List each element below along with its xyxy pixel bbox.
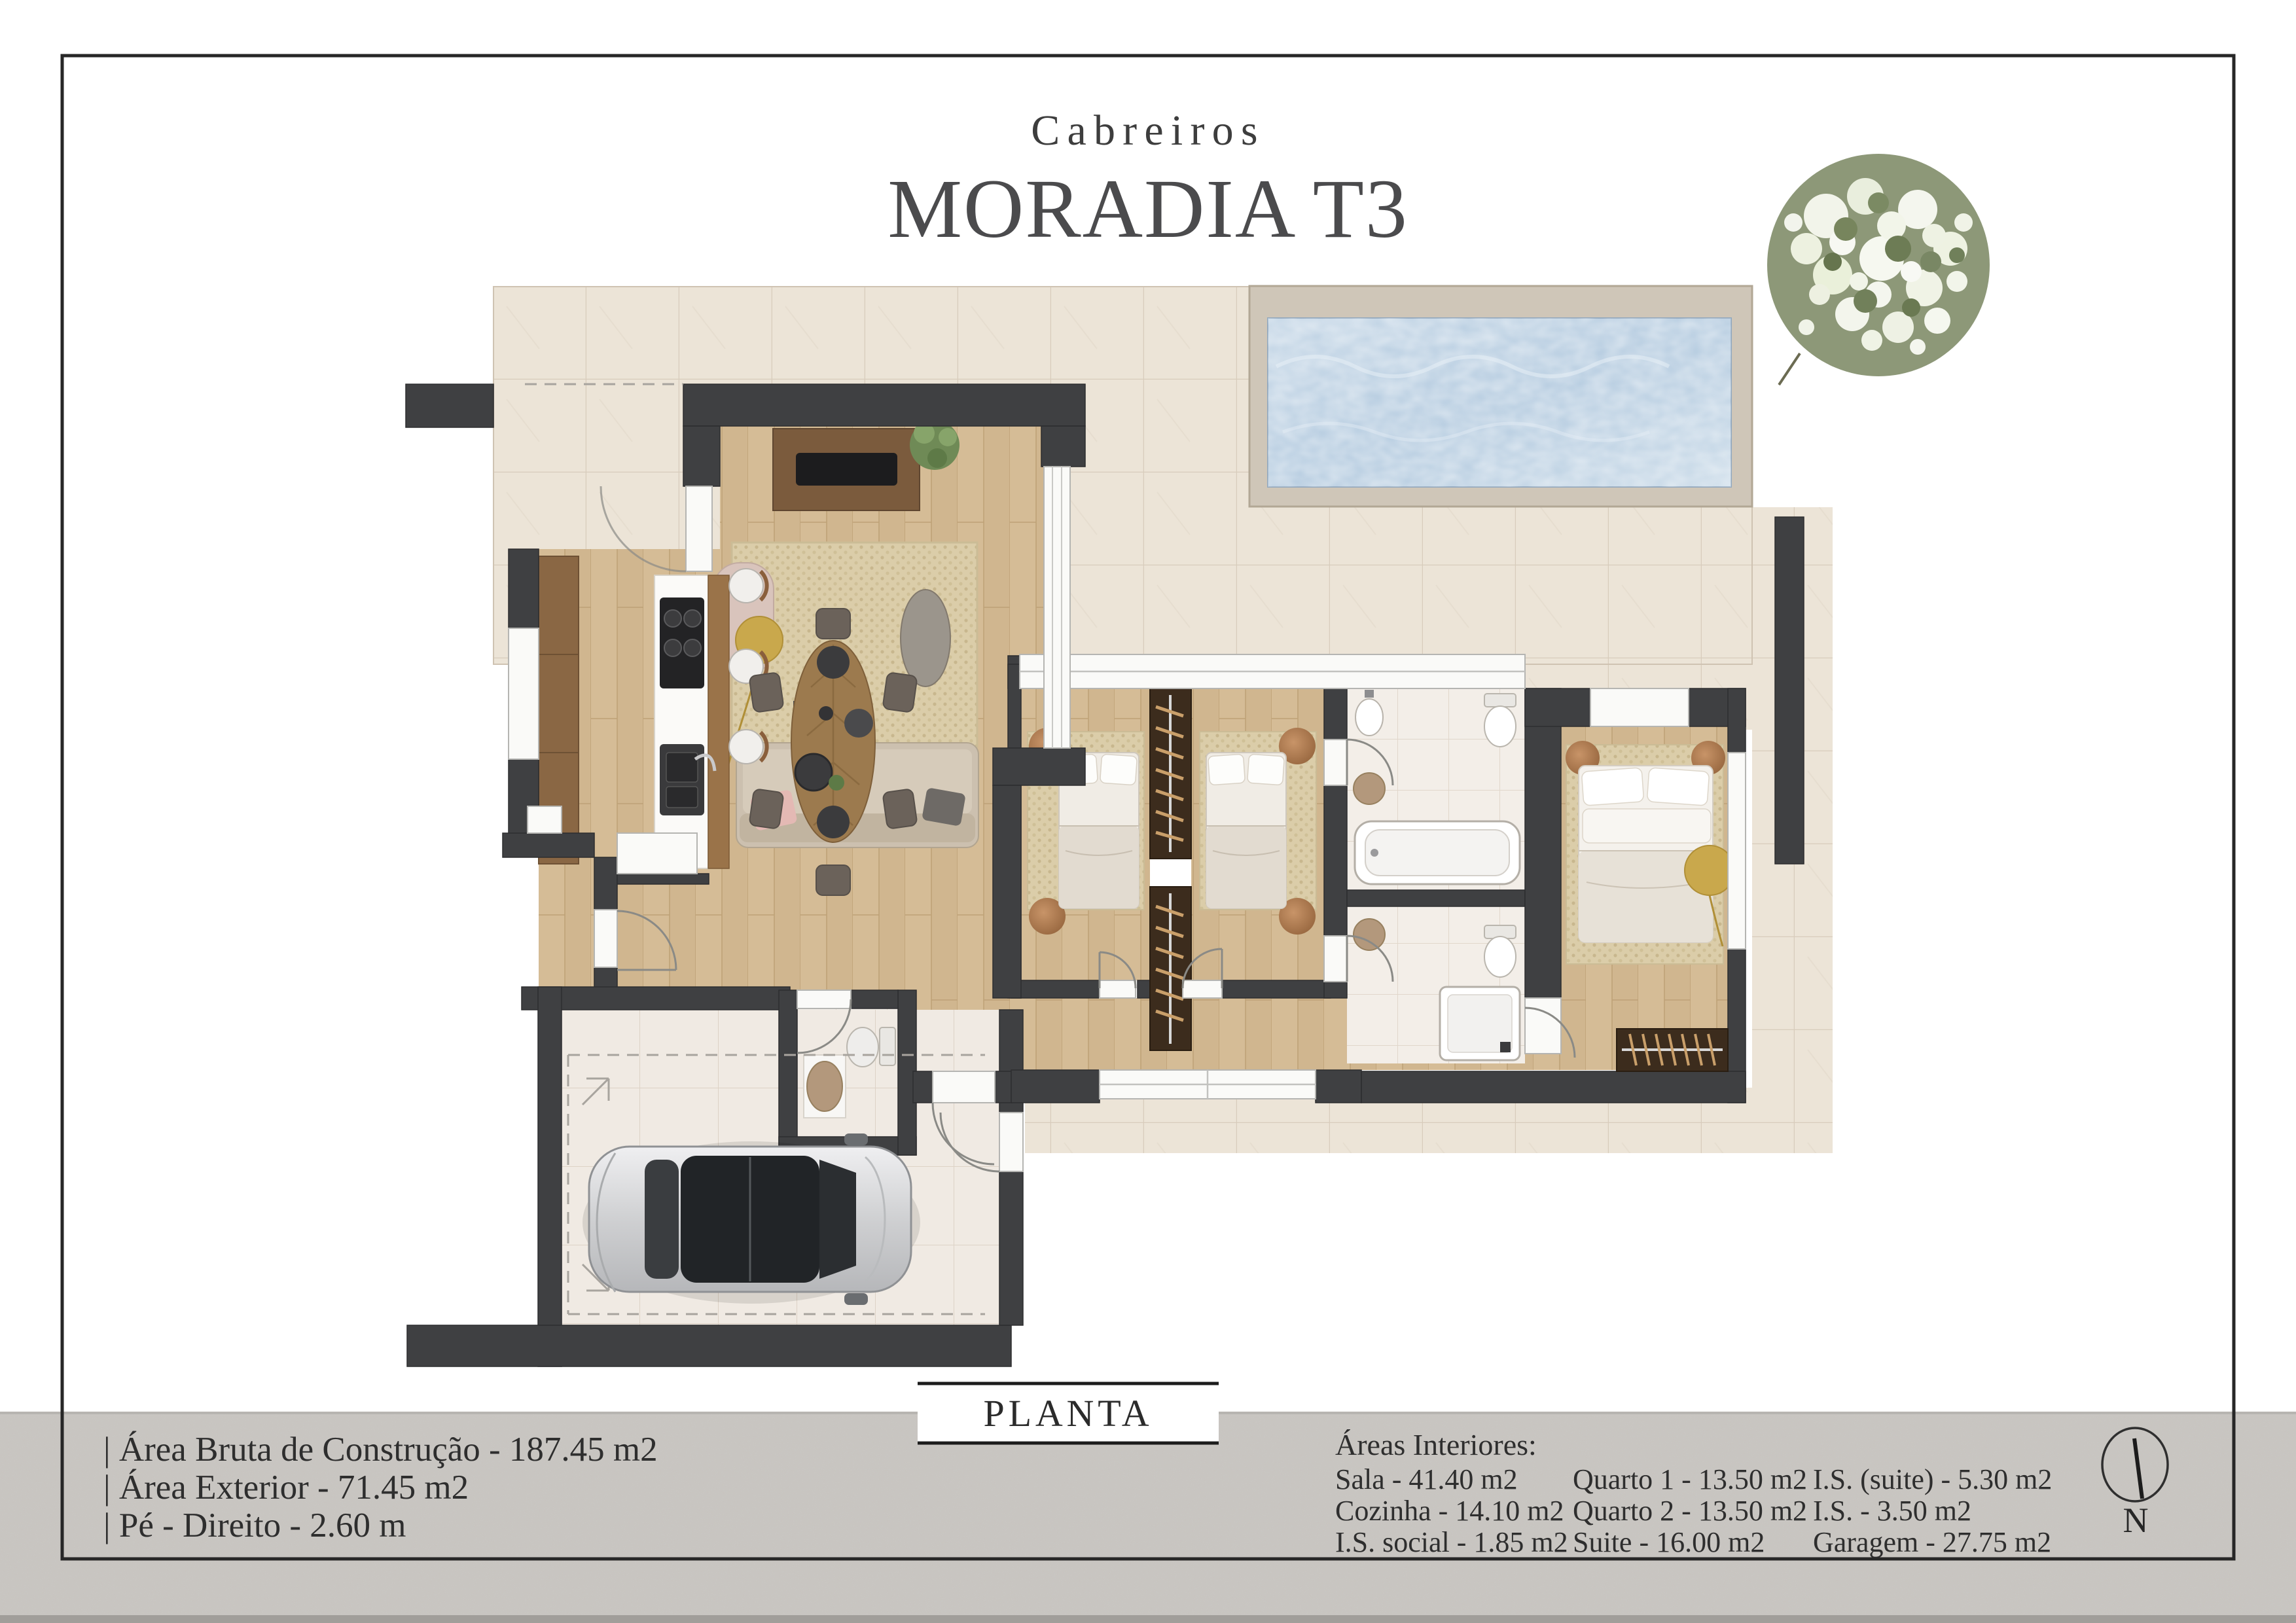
toilet (847, 1027, 878, 1067)
q1-door-opening (1100, 980, 1136, 998)
bar-stools (729, 569, 767, 764)
suite-door-opening (1525, 998, 1561, 1054)
rear-window (645, 1160, 679, 1279)
living-west-glass-door (686, 486, 712, 571)
entry-door-opening (594, 910, 617, 967)
gold-lamp (1685, 846, 1734, 895)
spec-line: | Pé - Direito - 2.60 m (103, 1507, 658, 1544)
areas-column-2: Quarto 1 - 13.50 m2 Quarto 2 - 13.50 m2 … (1573, 1464, 1807, 1558)
wardrobe-suite (1617, 1029, 1728, 1071)
areas-column-1: Sala - 41.40 m2 Cozinha - 14.10 m2 I.S. … (1335, 1464, 1568, 1558)
area-item: I.S. - 3.50 m2 (1813, 1495, 2052, 1527)
shower-drain (1500, 1042, 1511, 1052)
spec-line: | Área Exterior - 71.45 m2 (103, 1469, 658, 1507)
wardrobe-q1-q2-upper (1150, 688, 1191, 859)
bedroom-2 (1200, 728, 1316, 935)
kitchen-west-window (509, 628, 539, 759)
area-item: Garagem - 27.75 m2 (1813, 1527, 2052, 1558)
oval-sink (807, 1061, 842, 1111)
west-window (528, 806, 562, 833)
plan-label: PLANTA (918, 1391, 1219, 1435)
area-item: Cozinha - 14.10 m2 (1335, 1495, 1568, 1527)
plate (844, 709, 873, 738)
area-item: Suite - 16.00 m2 (1573, 1527, 1807, 1558)
areas-column-3: I.S. (suite) - 5.30 m2 I.S. - 3.50 m2 Ga… (1813, 1464, 2052, 1558)
floorplan-sheet: Cabreiros MORADIA T3 | Área Bruta de Con… (0, 0, 2296, 1623)
area-item: I.S. (suite) - 5.30 m2 (1813, 1464, 2052, 1495)
pool (1249, 286, 1752, 507)
tv (796, 453, 897, 486)
suite-bedroom (1566, 741, 1734, 964)
bath1-door-opening (1324, 740, 1347, 785)
wardrobe-q1-q2-lower (1150, 887, 1191, 1050)
bath2-door-opening (1324, 936, 1347, 982)
spec-list: | Área Bruta de Construção - 187.45 m2 |… (103, 1431, 658, 1544)
side-mirror (844, 1133, 868, 1145)
bed (1206, 753, 1286, 908)
area-item: Quarto 2 - 13.50 m2 (1573, 1495, 1807, 1527)
bedrooms-north-window (1020, 654, 1525, 688)
pillow (922, 787, 966, 827)
spec-line: | Área Bruta de Construção - 187.45 m2 (103, 1431, 658, 1469)
pot (795, 754, 832, 791)
car (583, 1133, 920, 1305)
windshield (819, 1160, 856, 1279)
sink (1355, 699, 1383, 736)
area-item: Sala - 41.40 m2 (1335, 1464, 1568, 1495)
toilet (1484, 936, 1516, 977)
toilet (1484, 706, 1516, 747)
entry-window (617, 833, 697, 874)
brand-name: Cabreiros (0, 106, 2296, 156)
suite-east-window (1728, 753, 1746, 949)
areas-heading: Áreas Interiores: (1335, 1427, 1537, 1462)
plate (817, 646, 850, 679)
area-item: Quarto 1 - 13.50 m2 (1573, 1464, 1807, 1495)
round-basin (1354, 919, 1385, 950)
bedrooms-south-window (1100, 1070, 1316, 1099)
area-item: I.S. social - 1.85 m2 (1335, 1527, 1568, 1558)
garage-side-door-opening (999, 1113, 1023, 1171)
side-table (901, 590, 950, 687)
living-east-glass-door (1044, 467, 1070, 748)
drain (1371, 849, 1378, 857)
lobby-door-opening (933, 1071, 995, 1103)
table-plant (829, 775, 844, 791)
side-mirror (844, 1293, 868, 1305)
q2-door-opening (1183, 980, 1222, 998)
suite-north-window (1590, 688, 1689, 726)
wc-door-opening (797, 990, 851, 1008)
compass-label: N (2100, 1500, 2172, 1541)
page-title: MORADIA T3 (0, 161, 2296, 257)
plate (817, 806, 850, 838)
round-basin (1354, 773, 1385, 804)
